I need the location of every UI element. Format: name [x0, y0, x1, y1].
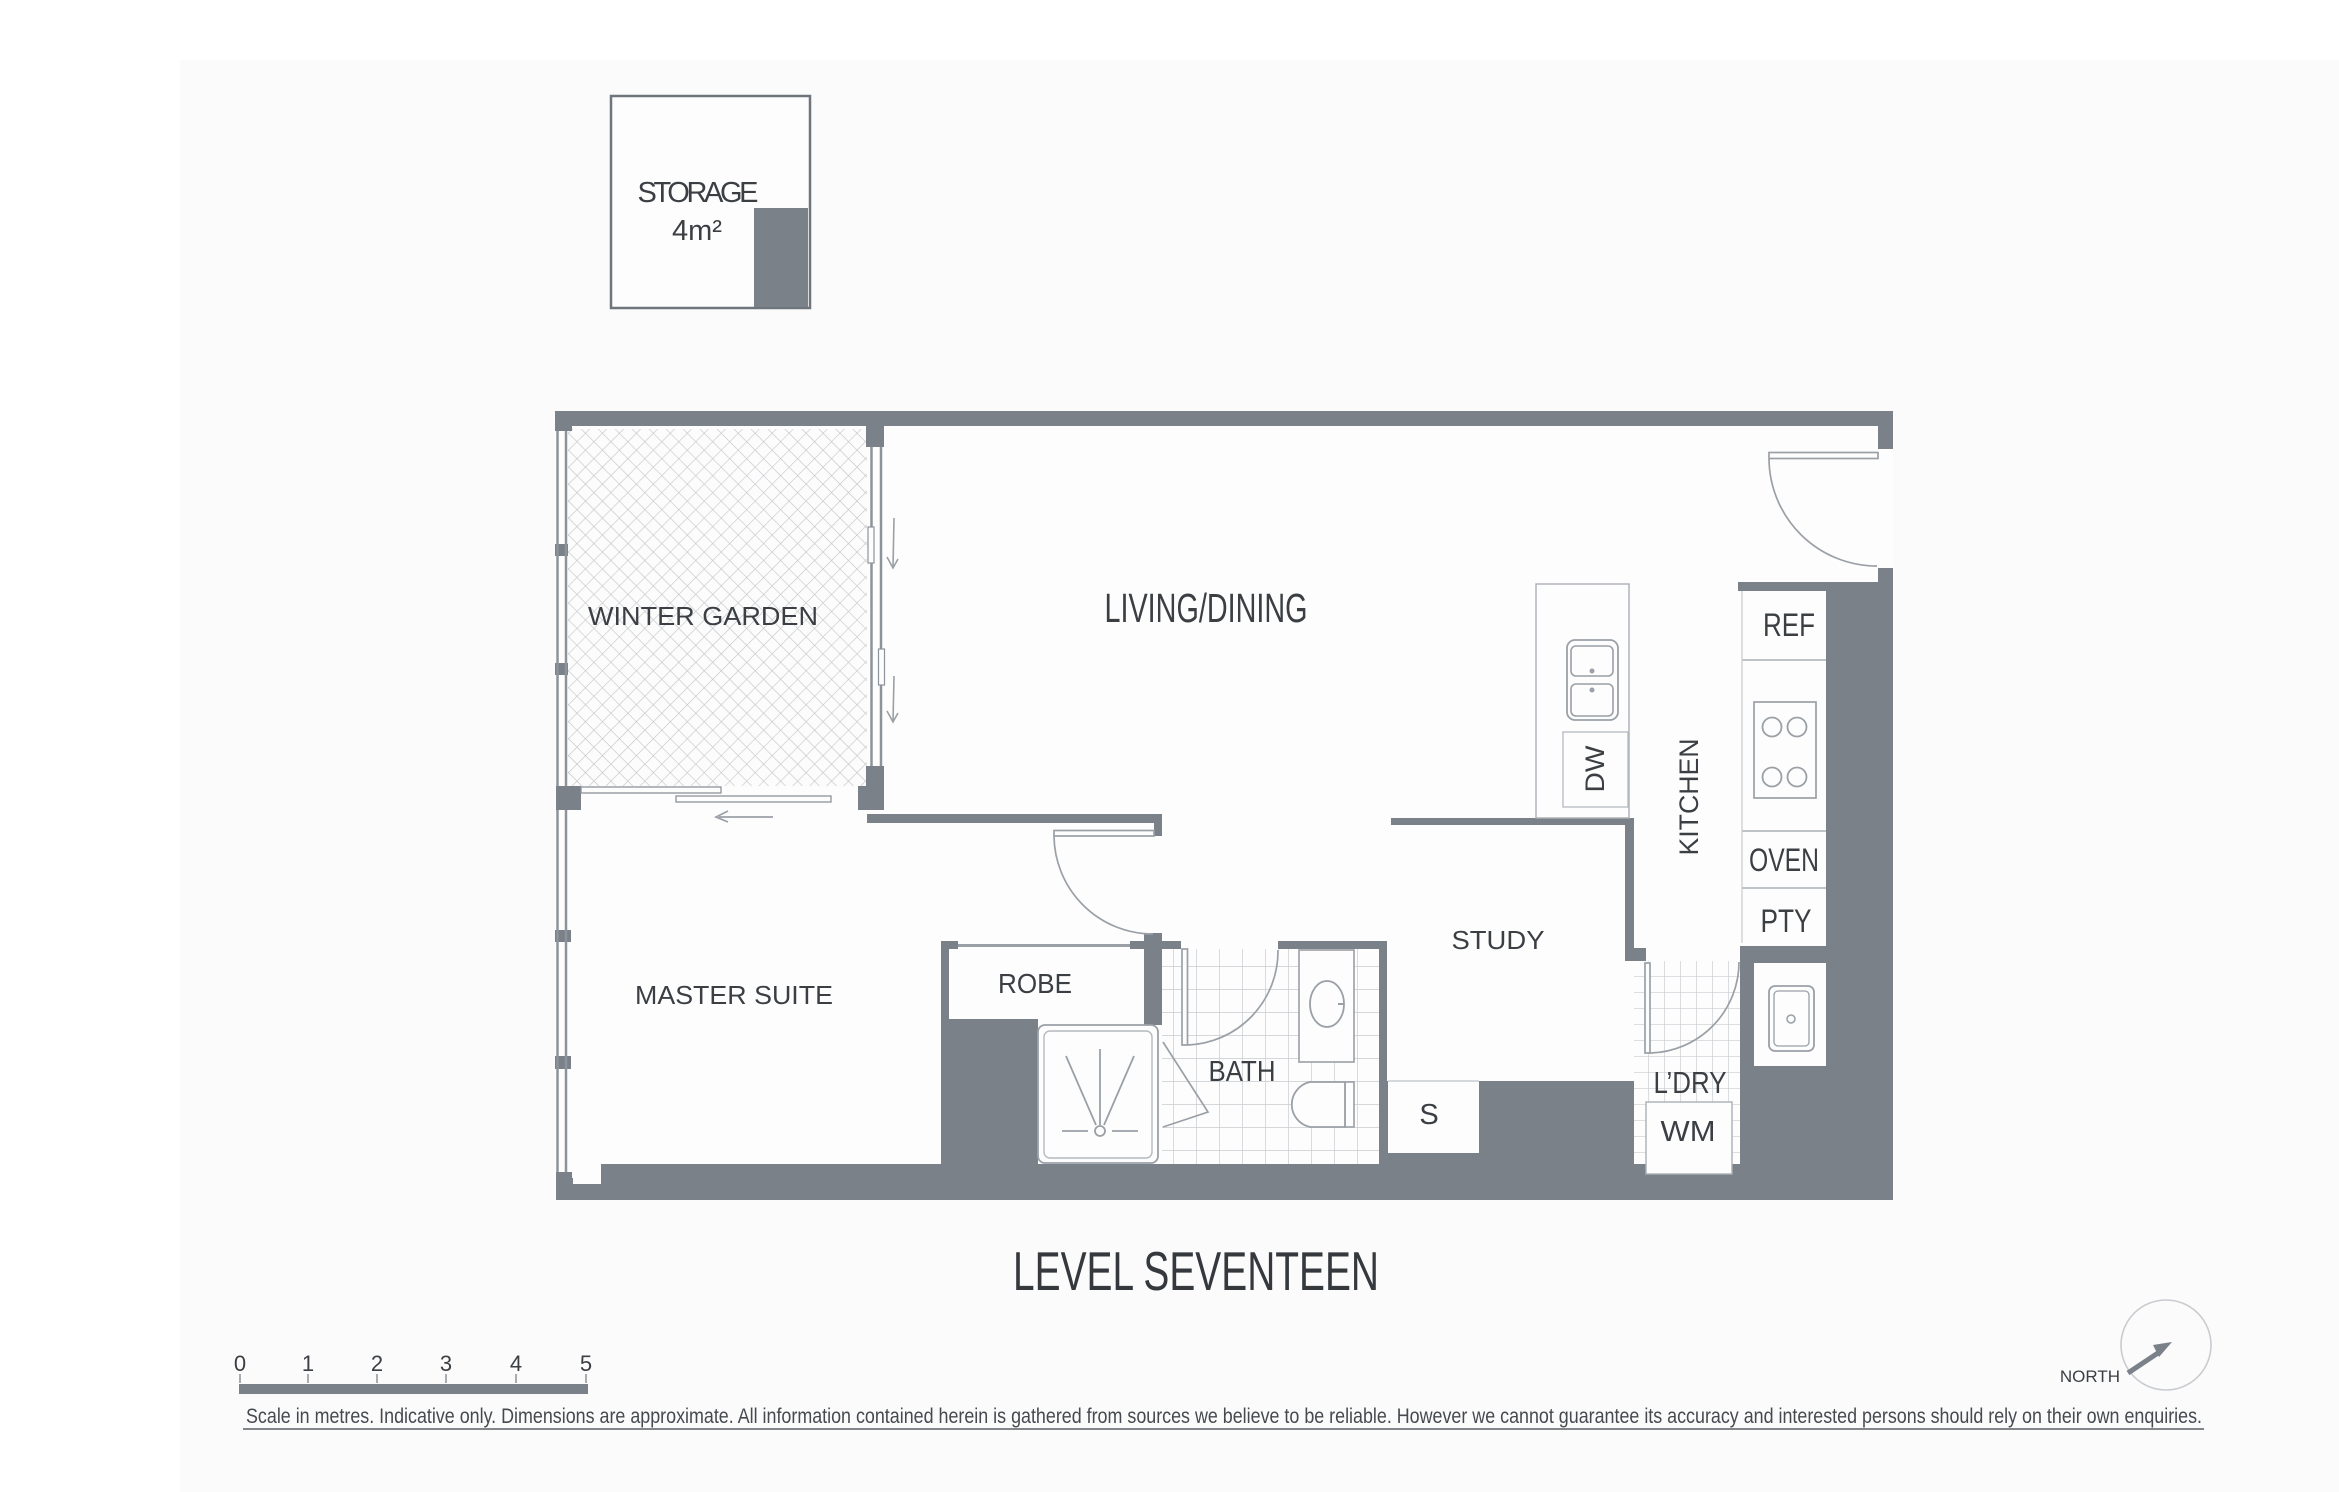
svg-text:STORAGE: STORAGE	[638, 177, 759, 209]
svg-text:5: 5	[580, 1351, 592, 1376]
svg-text:OVEN: OVEN	[1749, 842, 1819, 878]
svg-text:WINTER GARDEN: WINTER GARDEN	[588, 601, 818, 631]
svg-text:DW: DW	[1580, 745, 1610, 793]
svg-text:BATH: BATH	[1209, 1056, 1276, 1088]
svg-text:MASTER SUITE: MASTER SUITE	[635, 980, 833, 1010]
svg-text:ROBE: ROBE	[998, 968, 1072, 999]
svg-text:1: 1	[302, 1351, 314, 1376]
svg-text:NORTH: NORTH	[2060, 1367, 2120, 1386]
svg-text:WM: WM	[1661, 1116, 1716, 1148]
svg-text:3: 3	[440, 1351, 452, 1376]
svg-text:LEVEL SEVENTEEN: LEVEL SEVENTEEN	[1013, 1240, 1379, 1302]
svg-text:KITCHEN: KITCHEN	[1674, 739, 1704, 856]
svg-text:4m²: 4m²	[672, 215, 722, 247]
svg-text:LIVING/DINING: LIVING/DINING	[1105, 585, 1308, 631]
svg-text:STUDY: STUDY	[1452, 925, 1545, 955]
svg-text:4: 4	[510, 1351, 522, 1376]
svg-text:0: 0	[234, 1351, 246, 1376]
svg-text:REF: REF	[1763, 607, 1815, 643]
svg-text:2: 2	[371, 1351, 383, 1376]
svg-text:S: S	[1419, 1099, 1438, 1131]
svg-text:L’DRY: L’DRY	[1654, 1065, 1727, 1100]
svg-text:PTY: PTY	[1761, 903, 1812, 939]
svg-text:Scale in metres. Indicative on: Scale in metres. Indicative only. Dimens…	[246, 1405, 2202, 1428]
